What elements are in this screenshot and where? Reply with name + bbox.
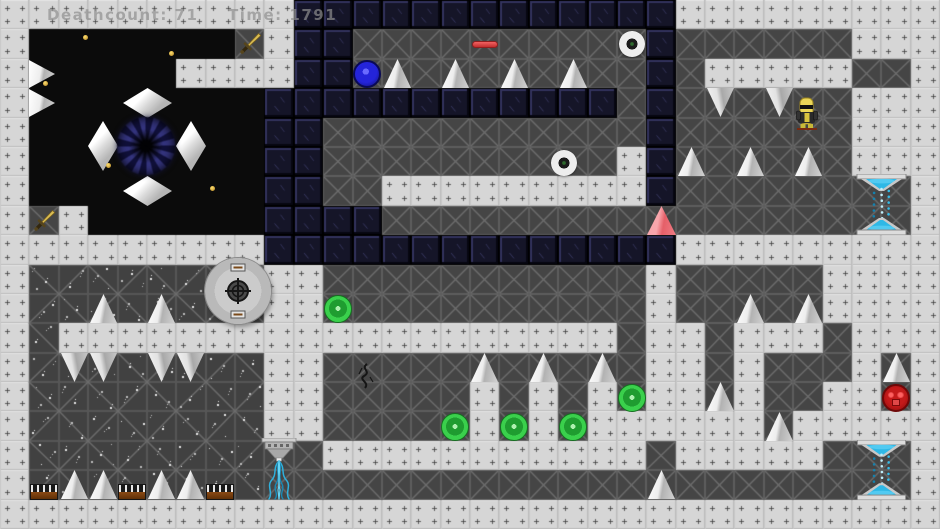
white-spike	[766, 412, 793, 441]
game-viewport[interactable]: Deathcount: 71 Time: 1791	[0, 0, 940, 529]
ceiling-spike	[766, 88, 793, 117]
white-diamond	[123, 88, 172, 118]
red-face-orb	[882, 384, 910, 412]
white-spike	[471, 353, 498, 382]
gray-disc	[619, 31, 645, 57]
gray-disc	[551, 150, 577, 176]
white-diamond	[88, 121, 118, 171]
gold-sword	[30, 207, 58, 235]
green-orb	[618, 384, 646, 412]
white-spike	[530, 353, 557, 382]
ceiling-spike	[90, 353, 117, 382]
red-orb-eye	[897, 392, 903, 398]
red-orb-eye	[888, 392, 894, 398]
white-spike	[707, 382, 734, 411]
red-orb-mouth	[892, 399, 900, 405]
white-spike	[61, 470, 88, 499]
deathcount-label: Deathcount: 71	[47, 6, 198, 24]
green-orb	[441, 413, 469, 441]
white-spike	[148, 470, 175, 499]
white-spike	[883, 353, 910, 382]
blue-orb	[353, 60, 381, 88]
white-diamond	[176, 121, 206, 171]
black-hole-vortex	[117, 117, 175, 175]
gold-sword	[236, 30, 264, 58]
conveyor-platform	[30, 484, 58, 500]
gold-dot	[169, 51, 174, 56]
white-spike	[737, 147, 764, 176]
gold-dot	[43, 81, 48, 86]
white-spike	[148, 294, 175, 323]
gold-dot	[106, 163, 111, 168]
cannon-turret	[205, 258, 271, 324]
gold-dot	[210, 186, 215, 191]
sprite-layer	[0, 0, 940, 529]
teleporter-beam	[853, 440, 910, 500]
white-spike	[737, 294, 764, 323]
green-orb	[500, 413, 528, 441]
white-spike	[90, 294, 117, 323]
wall-spike	[29, 89, 55, 117]
ceiling-spike	[148, 353, 175, 382]
wall-spike	[29, 60, 55, 88]
white-spike	[795, 294, 822, 323]
white-spike	[384, 59, 411, 88]
green-orb	[324, 295, 352, 323]
ceiling-spike	[61, 353, 88, 382]
white-spike	[560, 59, 587, 88]
teleporter-beam	[853, 174, 910, 235]
white-spike	[90, 470, 117, 499]
red-pill	[472, 41, 498, 48]
gold-dot	[83, 35, 88, 40]
ceiling-spike	[177, 353, 204, 382]
conveyor-platform	[118, 484, 146, 500]
conveyor-platform	[206, 484, 234, 500]
white-spike	[589, 353, 616, 382]
water-emitter	[258, 438, 300, 500]
white-spike	[177, 470, 204, 499]
crack-decal	[353, 362, 379, 390]
time-label: Time: 1791	[228, 6, 337, 24]
white-spike	[648, 470, 675, 499]
ceiling-spike	[707, 88, 734, 117]
red-spike-triangle	[647, 206, 676, 235]
green-orb	[559, 413, 587, 441]
white-spike	[501, 59, 528, 88]
player-character	[794, 97, 820, 131]
white-spike	[795, 147, 822, 176]
white-diamond	[123, 176, 172, 206]
white-spike	[678, 147, 705, 176]
white-spike	[442, 59, 469, 88]
